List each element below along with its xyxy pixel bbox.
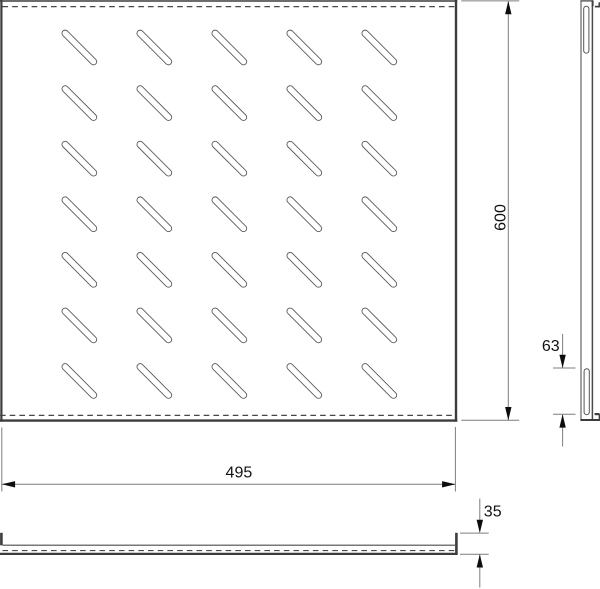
svg-text:600: 600 [493,204,510,231]
svg-text:495: 495 [226,465,253,482]
svg-text:35: 35 [484,503,502,520]
svg-text:63: 63 [542,338,560,355]
